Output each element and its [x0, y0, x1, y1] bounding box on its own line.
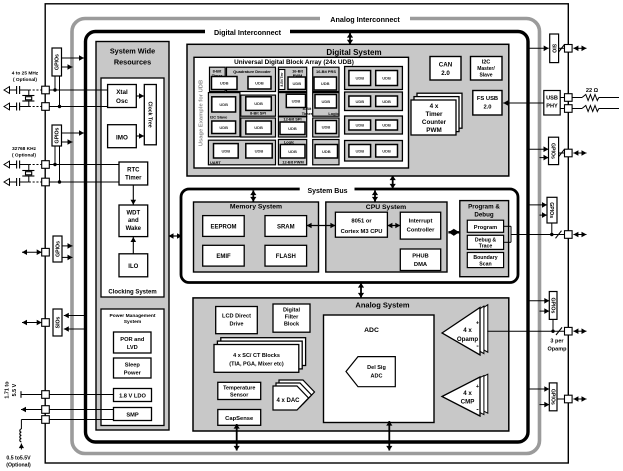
svg-text:2.0: 2.0 — [441, 70, 450, 77]
svg-text:UDB: UDB — [355, 99, 364, 104]
svg-text:Drive: Drive — [230, 322, 244, 328]
svg-text:CMP: CMP — [461, 399, 475, 406]
svg-text:1.71 to: 1.71 to — [4, 381, 10, 399]
svg-text:Debug &: Debug & — [475, 237, 497, 243]
svg-text:Digital: Digital — [283, 308, 301, 314]
svg-text:Counter: Counter — [422, 119, 447, 126]
svg-text:Filter: Filter — [285, 315, 299, 321]
svg-text:PHY: PHY — [546, 104, 558, 110]
svg-text:4 to 25 MHz: 4 to 25 MHz — [12, 71, 39, 77]
svg-text:UDB: UDB — [382, 76, 391, 81]
svg-text:DMA: DMA — [414, 262, 428, 268]
svg-text:Opamp: Opamp — [457, 336, 479, 343]
svg-text:RTC: RTC — [127, 168, 140, 174]
svg-text:+: + — [476, 384, 479, 390]
svg-text:Universal Digital Block Array: Universal Digital Block Array (24x UDB) — [234, 59, 354, 66]
svg-text:Clock Tree: Clock Tree — [146, 101, 152, 127]
svg-text:UDB: UDB — [221, 148, 230, 153]
svg-text:Timer: Timer — [425, 111, 443, 118]
svg-text:UDB: UDB — [322, 125, 331, 130]
svg-text:5.5 V: 5.5 V — [12, 383, 18, 396]
svg-text:12-Bit PWM: 12-Bit PWM — [282, 160, 303, 165]
svg-text:GPIOs: GPIOs — [549, 389, 555, 405]
svg-text:( Optional): ( Optional) — [12, 153, 36, 159]
svg-text:Controller: Controller — [407, 228, 435, 234]
svg-text:Program &: Program & — [468, 204, 500, 211]
svg-text:Timer: Timer — [125, 176, 142, 182]
svg-text:EEPROM: EEPROM — [210, 225, 236, 231]
svg-text:Program: Program — [474, 225, 497, 231]
svg-text:System Wide: System Wide — [110, 47, 155, 56]
svg-text:Digital Interconnect: Digital Interconnect — [214, 28, 282, 37]
svg-text:LCD Direct: LCD Direct — [222, 314, 251, 320]
svg-text:GPIOs: GPIOs — [548, 202, 554, 218]
svg-text:Wake: Wake — [126, 226, 142, 232]
svg-text:Scan: Scan — [479, 262, 491, 268]
svg-text:Xtal: Xtal — [116, 89, 128, 96]
svg-text:UDB: UDB — [255, 80, 264, 85]
svg-text:UDB: UDB — [292, 81, 301, 86]
svg-text:+: + — [476, 321, 479, 327]
svg-text:Analog System: Analog System — [355, 300, 410, 309]
svg-text:System Bus: System Bus — [307, 188, 347, 195]
svg-text:Slave: Slave — [479, 73, 492, 79]
svg-text:PHUB: PHUB — [412, 254, 428, 260]
svg-text:GPIOs: GPIOs — [549, 297, 555, 313]
svg-text:UDB: UDB — [219, 102, 228, 107]
svg-text:1.8 V LDO: 1.8 V LDO — [119, 394, 146, 400]
svg-text:4 x SC/ CT Blocks: 4 x SC/ CT Blocks — [233, 353, 280, 359]
svg-text:32768 KHz: 32768 KHz — [12, 146, 37, 152]
svg-text:I2C: I2C — [482, 60, 491, 66]
svg-text:( Optional): ( Optional) — [13, 77, 37, 83]
svg-text:Memory System: Memory System — [230, 204, 282, 211]
svg-text:GPIOs: GPIOs — [55, 54, 61, 70]
svg-text:4 x: 4 x — [430, 103, 439, 110]
svg-text:Trace: Trace — [479, 244, 493, 250]
svg-text:8051 or: 8051 or — [351, 219, 372, 225]
svg-text:Cortex M3 CPU: Cortex M3 CPU — [341, 229, 383, 235]
svg-text:UDB: UDB — [255, 148, 264, 153]
svg-text:Logic: Logic — [328, 111, 339, 116]
svg-text:GPIOs: GPIOs — [550, 143, 556, 159]
svg-text:UART: UART — [210, 160, 221, 165]
svg-text:Debug: Debug — [474, 212, 493, 219]
svg-text:Timer: Timer — [302, 111, 313, 116]
svg-text:UDB: UDB — [219, 125, 228, 130]
svg-text:Clocking System: Clocking System — [108, 290, 156, 296]
svg-text:WDT: WDT — [126, 211, 140, 217]
svg-text:4 x DAC: 4 x DAC — [276, 398, 300, 404]
svg-text:ILO: ILO — [128, 264, 138, 270]
svg-text:USB: USB — [546, 96, 558, 102]
svg-text:22 Ω: 22 Ω — [586, 88, 599, 94]
svg-text:16-Bit PRS: 16-Bit PRS — [316, 69, 336, 74]
svg-text:UDB: UDB — [382, 123, 391, 128]
svg-text:GPIOs: GPIOs — [55, 127, 61, 143]
svg-text:UDB: UDB — [355, 148, 364, 153]
svg-text:FS USB: FS USB — [477, 96, 498, 102]
svg-text:Power: Power — [124, 371, 142, 377]
svg-text:UDB: UDB — [322, 149, 331, 154]
svg-text:Block: Block — [284, 322, 300, 328]
svg-text:UDB: UDB — [292, 98, 301, 103]
svg-text:Osc: Osc — [116, 98, 128, 105]
svg-text:12-Bit SPI: 12-Bit SPI — [283, 117, 301, 122]
svg-text:SIO: SIO — [550, 44, 556, 53]
svg-text:UDB: UDB — [382, 148, 391, 153]
svg-text:GPIOs: GPIOs — [55, 241, 61, 257]
svg-text:8-Bit SPI: 8-Bit SPI — [250, 111, 266, 116]
svg-text:UDB: UDB — [254, 125, 263, 130]
svg-text:CapSense: CapSense — [225, 416, 254, 422]
svg-text:Quadrature Decoder: Quadrature Decoder — [233, 69, 271, 74]
svg-text:UDB: UDB — [321, 99, 330, 104]
svg-text:UDB: UDB — [220, 81, 229, 86]
svg-text:ADC: ADC — [371, 374, 383, 380]
svg-text:I2C Slave: I2C Slave — [210, 114, 228, 119]
svg-text:FLASH: FLASH — [276, 254, 296, 260]
svg-text:LVD: LVD — [127, 345, 138, 351]
svg-text:and: and — [128, 218, 139, 224]
svg-text:UDB: UDB — [321, 81, 330, 86]
svg-text:Temperature: Temperature — [223, 385, 255, 391]
svg-text:Usage Example for UDB: Usage Example for UDB — [199, 80, 205, 146]
svg-text:UDB: UDB — [355, 76, 364, 81]
svg-text:Power Management: Power Management — [110, 313, 156, 319]
svg-text:SIOs: SIOs — [55, 316, 61, 328]
svg-text:8-Bit Tmr: 8-Bit Tmr — [280, 72, 284, 87]
svg-text:ADC: ADC — [364, 327, 379, 334]
svg-text:2.0: 2.0 — [483, 105, 491, 111]
svg-text:4 x: 4 x — [463, 327, 472, 334]
svg-text:System: System — [124, 319, 142, 325]
svg-text:Interrupt: Interrupt — [409, 219, 433, 225]
svg-text:UDB: UDB — [254, 101, 263, 106]
svg-text:0.5 to5.5V: 0.5 to5.5V — [6, 456, 31, 462]
svg-text:SMP: SMP — [126, 413, 139, 419]
svg-text:EMIF: EMIF — [216, 254, 231, 260]
svg-text:UDB: UDB — [355, 123, 364, 128]
svg-text:4 x: 4 x — [463, 390, 472, 397]
svg-text:Boundary: Boundary — [473, 255, 497, 261]
svg-text:3 per: 3 per — [550, 339, 564, 345]
svg-text:PWM: PWM — [426, 127, 441, 134]
svg-text:IMO: IMO — [116, 134, 128, 141]
svg-text:Sleep: Sleep — [125, 363, 141, 369]
svg-text:Del Sig: Del Sig — [367, 365, 386, 371]
svg-text:UDB: UDB — [288, 126, 297, 131]
svg-text:(TIA, PGA, Mixer etc): (TIA, PGA, Mixer etc) — [229, 362, 284, 368]
svg-text:Digital System: Digital System — [326, 48, 381, 57]
svg-text:Opamp: Opamp — [548, 347, 568, 353]
svg-text:Master/: Master/ — [477, 66, 495, 72]
svg-text:Resources: Resources — [114, 58, 151, 67]
svg-text:UDB: UDB — [288, 149, 297, 154]
svg-text:Logic: Logic — [284, 139, 295, 144]
svg-text:Sensor: Sensor — [230, 393, 249, 399]
svg-text:Analog Interconnect: Analog Interconnect — [330, 15, 400, 24]
svg-text:(Optional): (Optional) — [6, 463, 31, 469]
svg-text:SRAM: SRAM — [277, 225, 295, 231]
svg-text:CAN: CAN — [439, 62, 453, 69]
svg-text:POR and: POR and — [120, 337, 145, 343]
svg-text:UDB: UDB — [382, 99, 391, 104]
svg-text:CPU System: CPU System — [366, 204, 406, 211]
